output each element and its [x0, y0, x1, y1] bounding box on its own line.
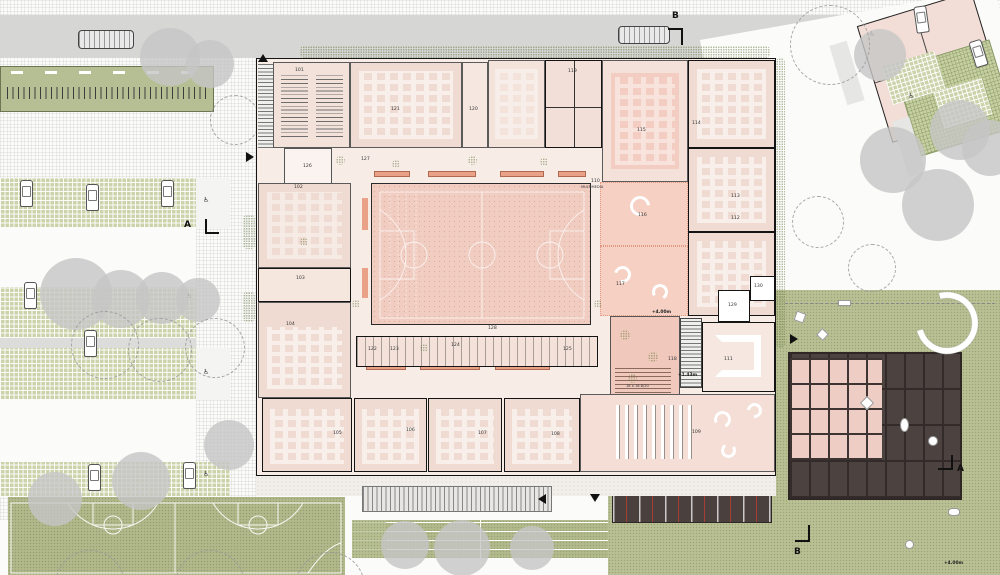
tree [434, 520, 490, 575]
room-label: 123 [390, 348, 399, 353]
room-label: 103 [296, 277, 305, 282]
car [161, 180, 174, 207]
play-furniture [838, 300, 851, 306]
hedge [243, 215, 255, 249]
desks [362, 409, 419, 464]
section-marker-line [938, 468, 953, 470]
desks [267, 327, 342, 389]
room-label: 125 [563, 348, 572, 353]
hedge [243, 292, 255, 322]
section-marker-line [205, 232, 219, 234]
room-label: 115 [637, 129, 646, 134]
room-label: 116 [638, 214, 647, 219]
section-marker-a-right: A [957, 465, 964, 474]
room-121-classroom [350, 62, 462, 148]
room-103-office [258, 268, 351, 302]
tree [860, 127, 926, 193]
play-furniture [928, 436, 938, 446]
plant [648, 352, 658, 362]
car [183, 462, 196, 489]
plant [300, 238, 308, 246]
entrance-arrow-icon [790, 334, 798, 344]
room-label: 114 [692, 122, 701, 127]
plant [594, 300, 602, 308]
room-label: 120 [469, 108, 478, 113]
play-furniture [948, 508, 960, 516]
seat-rows [316, 75, 343, 137]
accessible-bay [196, 178, 230, 228]
room-label: 128 [488, 327, 497, 332]
handicap-icon: ♿ [203, 470, 209, 478]
plant [628, 374, 637, 383]
car [86, 184, 99, 211]
pergola-pink-panels [790, 358, 882, 460]
room-label: 117 [616, 283, 625, 288]
room-106-classroom [354, 398, 427, 472]
room-114-classroom [688, 60, 775, 148]
handicap-icon: ♿ [203, 196, 209, 204]
room-label: 119 [568, 70, 577, 75]
site-plan-canvas: ♿ ♿ ♿ ♿ ♿ ♿ [0, 0, 1000, 575]
court-markings [372, 184, 592, 326]
entrance-arrow-icon [538, 494, 546, 504]
tree [204, 420, 254, 470]
u-shaped-table [715, 335, 761, 377]
desks [512, 409, 572, 464]
room-label: 126 [303, 165, 312, 170]
terrace-steps [615, 365, 671, 393]
room-label: 108 [551, 433, 560, 438]
section-marker-line [681, 28, 683, 45]
room-109-library [580, 394, 775, 472]
room-117-multimedia [600, 246, 688, 316]
room-108-classroom [504, 398, 580, 472]
room-label: 124 [451, 344, 460, 349]
planter [362, 268, 368, 298]
section-marker-line [795, 540, 810, 542]
tree [28, 472, 82, 526]
bus [78, 30, 134, 49]
desks [697, 157, 766, 223]
bus [618, 26, 670, 44]
room-label: 101 [295, 69, 304, 74]
room-group-meeting [488, 60, 545, 148]
curved-couch [712, 409, 734, 431]
plant [420, 344, 428, 352]
stairs-nw [258, 64, 273, 148]
room-107-classroom [428, 398, 502, 472]
wall [546, 107, 601, 108]
plant [392, 160, 400, 168]
room-label: 130 [754, 285, 763, 290]
room-label: 109 [692, 431, 701, 436]
section-marker-b-bottom: B [794, 548, 801, 557]
room-104-classroom [258, 302, 351, 398]
bike-racks [7, 87, 207, 99]
dashed-tree [210, 95, 260, 145]
bench [500, 171, 544, 177]
section-marker-b-top: B [672, 12, 679, 21]
planter [362, 198, 368, 230]
exterior-stairs [362, 486, 552, 512]
dashed-tree [792, 196, 844, 248]
room-label: 118 [668, 358, 677, 363]
tree [176, 278, 220, 322]
desks [697, 69, 766, 139]
desks [495, 69, 538, 139]
room-label: 106 [406, 429, 415, 434]
room-label: 105 [333, 432, 342, 437]
plant [620, 330, 630, 340]
seat-rows [281, 75, 308, 137]
handicap-icon: ♿ [908, 92, 914, 100]
tree [381, 521, 429, 569]
curved-couch [744, 400, 765, 421]
room-label: 102 [294, 186, 303, 191]
parking-aisle [0, 400, 196, 462]
tree [112, 452, 170, 510]
sports-court [371, 183, 591, 325]
room-label: 122 [368, 348, 377, 353]
plant [540, 158, 548, 166]
dashed-tree [128, 318, 192, 382]
room-label: 104 [286, 323, 295, 328]
plant [352, 300, 360, 308]
entrance-arrow-icon [258, 54, 268, 62]
room-101-auditorium [273, 62, 350, 148]
stair-note-label: 18 x 16.8/20 [626, 385, 649, 389]
level-label: +1.43m [678, 374, 697, 378]
dashed-tree [185, 318, 245, 378]
room-115-open-office [602, 60, 688, 182]
car [24, 282, 37, 309]
multimedia-label: MULTIMEDIA [581, 186, 603, 190]
room-label: 127 [361, 158, 370, 163]
curved-couch [720, 442, 737, 459]
hedge [300, 46, 770, 58]
room-102-staffroom [258, 183, 351, 268]
hedge [776, 58, 785, 348]
bench [428, 171, 476, 177]
dashed-tree [848, 244, 896, 292]
bookshelves [616, 405, 696, 459]
dashed-tree [790, 5, 870, 85]
entrance-arrow-icon [590, 494, 600, 502]
level-label: +4.00m [652, 311, 671, 315]
desks [267, 192, 342, 259]
bench [374, 171, 410, 177]
room-label: 111 [724, 358, 733, 363]
room-label: 110 [591, 180, 600, 185]
play-furniture [905, 540, 914, 549]
car [88, 464, 101, 491]
room-111-seminar [702, 322, 775, 392]
room-label: 129 [728, 304, 737, 309]
entrance-arrow-icon [246, 152, 254, 162]
room-label: 112 [731, 217, 740, 222]
bench [558, 171, 586, 177]
plant [468, 156, 477, 165]
tree [510, 526, 554, 570]
desks [359, 71, 453, 139]
room-label: 113 [731, 195, 740, 200]
car [20, 180, 33, 207]
room-label: 107 [478, 432, 487, 437]
play-furniture [900, 418, 909, 432]
level-label: +4.00m [944, 562, 963, 566]
tree [186, 40, 234, 88]
room-label: 121 [391, 108, 400, 113]
section-marker-a-left: A [184, 221, 191, 230]
desks [615, 77, 675, 165]
pergola-strip [612, 495, 772, 523]
plant [336, 156, 345, 165]
room-120 [462, 62, 488, 148]
